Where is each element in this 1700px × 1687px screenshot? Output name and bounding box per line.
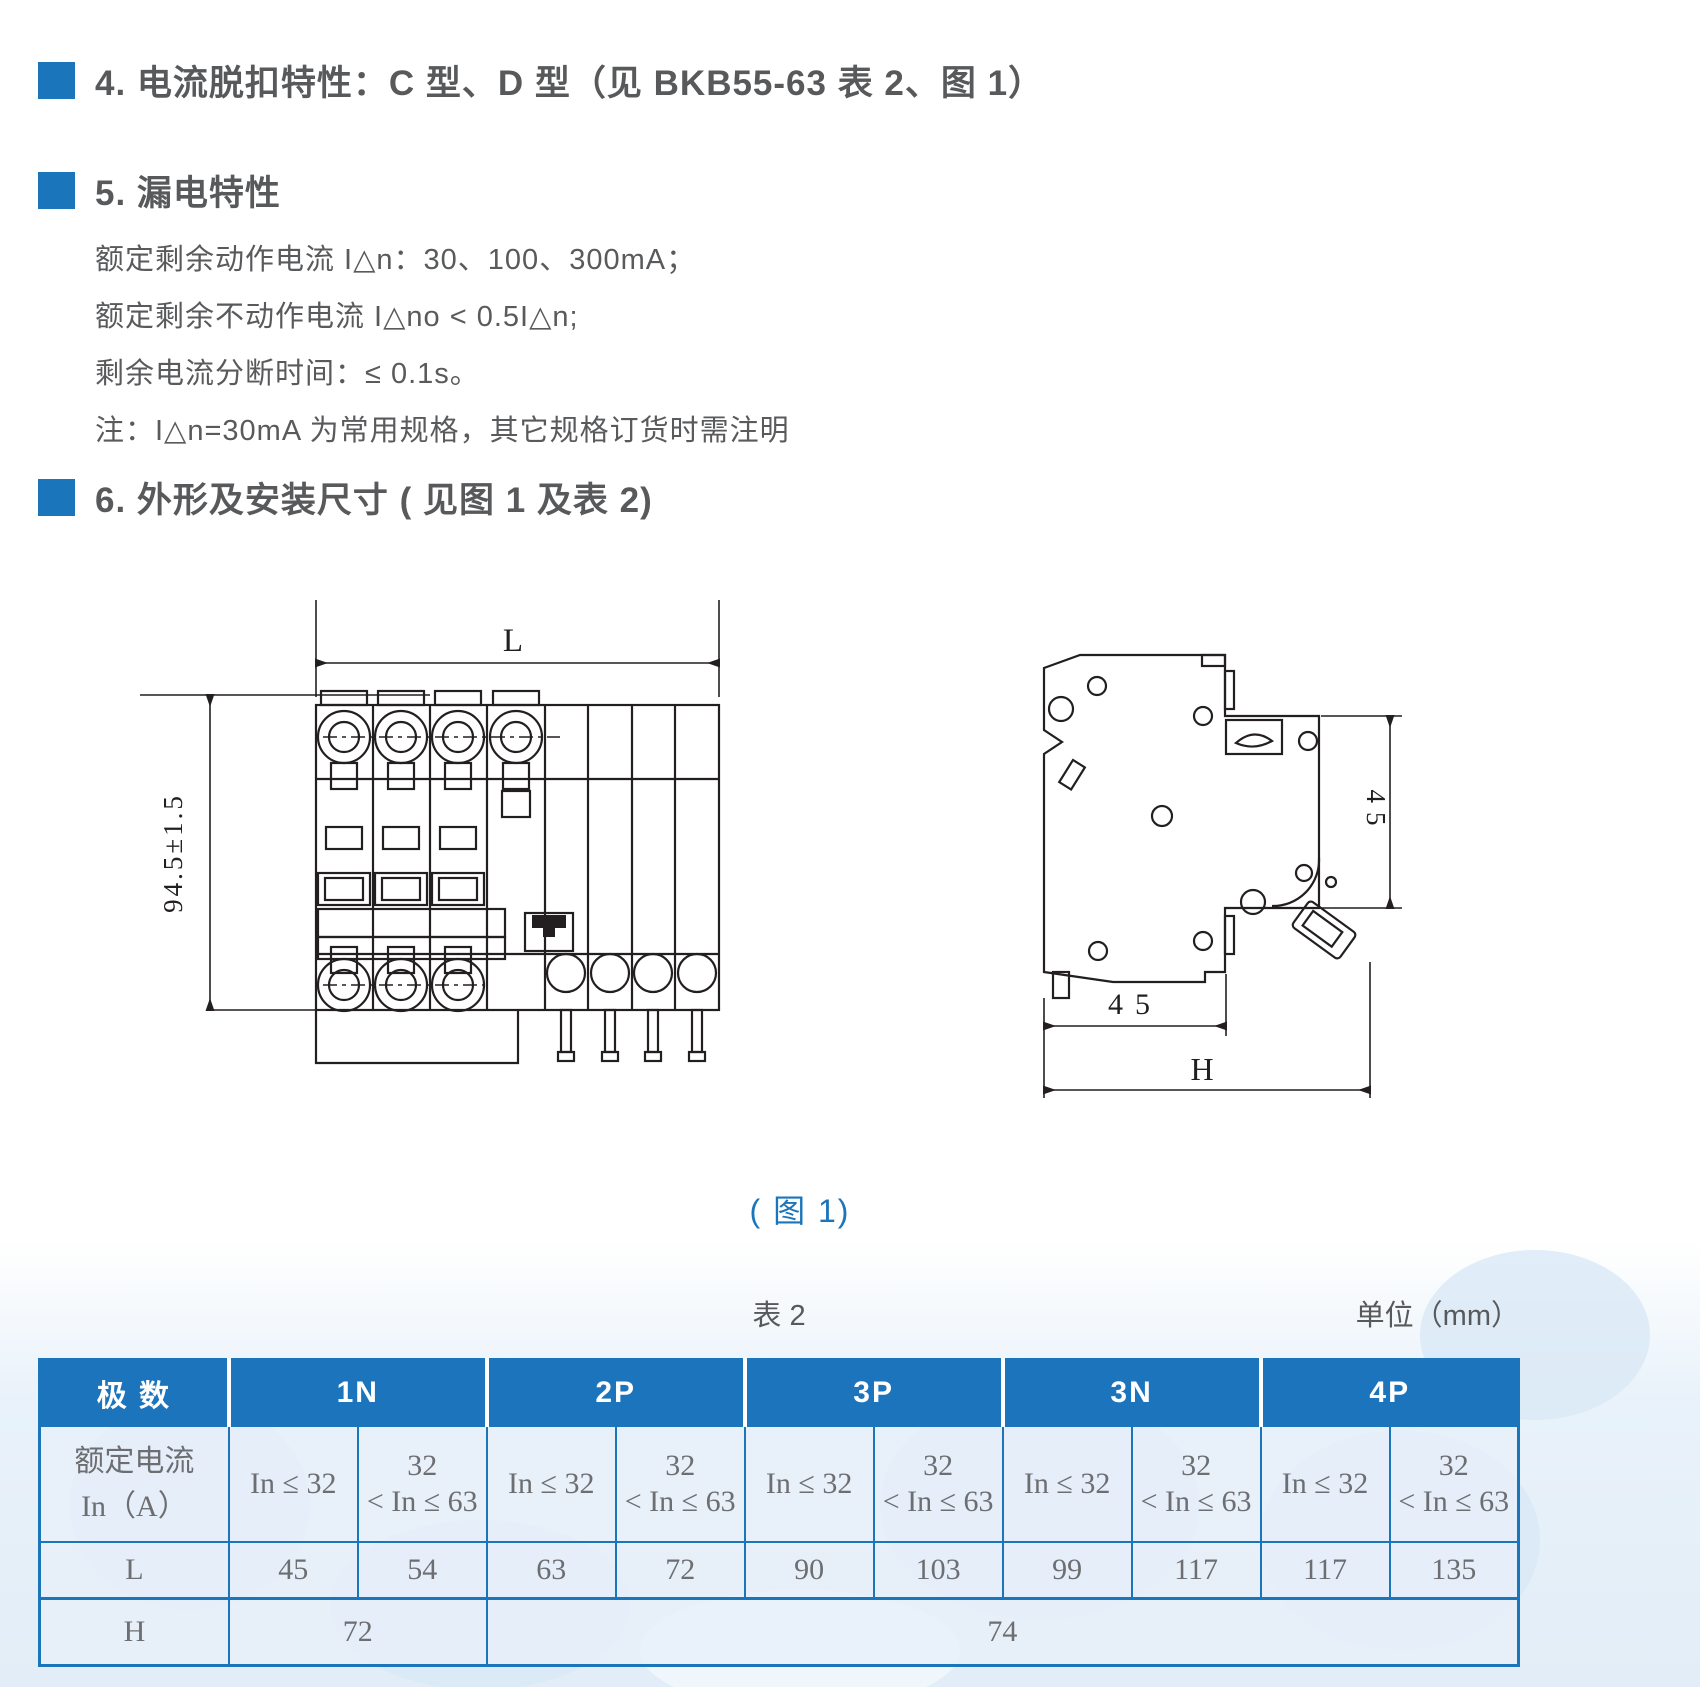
table-header-row: 极 数 1N 2P 3P 3N 4P bbox=[40, 1360, 1519, 1427]
range-cell: 32 < In ≤ 63 bbox=[1132, 1426, 1261, 1542]
L-value: 117 bbox=[1132, 1542, 1261, 1599]
range-cell: In ≤ 32 bbox=[745, 1426, 874, 1542]
datasheet-page: { "sections": { "s4": { "title": "4. 电流脱… bbox=[0, 0, 1700, 1687]
range-bottom: < In ≤ 63 bbox=[360, 1484, 485, 1520]
section-4-heading: 4. 电流脱扣特性：C 型、D 型（见 BKB55-63 表 2、图 1） bbox=[38, 55, 1044, 106]
figure-1-caption: ( 图 1) bbox=[650, 1186, 950, 1232]
section-6-heading: 6. 外形及安装尺寸 ( 见图 1 及表 2) bbox=[38, 472, 653, 523]
section-bullet-icon bbox=[38, 62, 75, 99]
section-bullet-icon bbox=[38, 479, 75, 516]
range-bottom: < In ≤ 63 bbox=[1392, 1484, 1516, 1520]
table-group-header-4P: 4P bbox=[1261, 1360, 1519, 1427]
range-cell: 32 < In ≤ 63 bbox=[1390, 1426, 1519, 1542]
range-cell: 32 < In ≤ 63 bbox=[358, 1426, 487, 1542]
L-value: 99 bbox=[1003, 1542, 1132, 1599]
dimensions-table: 极 数 1N 2P 3P 3N 4P 额定电流 In（A） In ≤ 32 32… bbox=[38, 1358, 1520, 1667]
L-row-label: L bbox=[40, 1542, 229, 1599]
side-view-drawing: 45 45 H bbox=[930, 560, 1450, 1120]
table-group-header-2P: 2P bbox=[487, 1360, 745, 1427]
side-right-dim-label: 45 bbox=[1361, 790, 1391, 835]
range-top: 32 bbox=[876, 1448, 1001, 1484]
side-bottom-dim-label: 45 bbox=[1108, 988, 1162, 1021]
range-bottom: < In ≤ 63 bbox=[618, 1484, 743, 1520]
H-value: 72 bbox=[229, 1599, 487, 1666]
section-4-title: 4. 电流脱扣特性：C 型、D 型（见 BKB55-63 表 2、图 1） bbox=[95, 55, 1044, 106]
range-cell: In ≤ 32 bbox=[1003, 1426, 1132, 1542]
range-cell: 32 < In ≤ 63 bbox=[616, 1426, 745, 1542]
section-5-heading: 5. 漏电特性 bbox=[38, 165, 281, 216]
table-H-row: H 72 74 bbox=[40, 1599, 1519, 1666]
section-5-title: 5. 漏电特性 bbox=[95, 165, 281, 216]
range-bottom: < In ≤ 63 bbox=[1134, 1484, 1259, 1520]
range-top: 32 bbox=[360, 1448, 485, 1484]
leakage-spec-line: 额定剩余不动作电流 I△no < 0.5I△n; bbox=[95, 293, 579, 335]
leakage-spec-line: 额定剩余动作电流 I△n：30、100、300mA； bbox=[95, 236, 696, 278]
L-value: 90 bbox=[745, 1542, 874, 1599]
table-L-row: L 45 54 63 72 90 103 99 117 117 135 bbox=[40, 1542, 1519, 1599]
table-group-header-3N: 3N bbox=[1003, 1360, 1261, 1427]
side-holes bbox=[1049, 677, 1336, 960]
rated-current-label-line1: 额定电流 bbox=[42, 1439, 227, 1484]
L-value: 45 bbox=[229, 1542, 358, 1599]
front-terminals bbox=[318, 711, 560, 1011]
range-bottom: < In ≤ 63 bbox=[876, 1484, 1001, 1520]
front-height-label: 94.5±1.5 bbox=[158, 793, 188, 913]
side-height-dim-label: H bbox=[1190, 1051, 1213, 1087]
L-value: 54 bbox=[358, 1542, 487, 1599]
table-corner-header: 极 数 bbox=[40, 1360, 229, 1427]
L-value: 63 bbox=[487, 1542, 616, 1599]
front-view-drawing: L 94.5±1.5 bbox=[120, 565, 740, 1085]
range-cell: In ≤ 32 bbox=[229, 1426, 358, 1542]
L-value: 103 bbox=[874, 1542, 1003, 1599]
H-value: 74 bbox=[487, 1599, 1519, 1666]
range-cell: In ≤ 32 bbox=[1261, 1426, 1390, 1542]
table-group-header-1N: 1N bbox=[229, 1360, 487, 1427]
L-value: 135 bbox=[1390, 1542, 1519, 1599]
range-cell: 32 < In ≤ 63 bbox=[874, 1426, 1003, 1542]
section-bullet-icon bbox=[38, 172, 75, 209]
table-group-header-3P: 3P bbox=[745, 1360, 1003, 1427]
table-rated-current-row: 额定电流 In（A） In ≤ 32 32 < In ≤ 63 In ≤ 32 … bbox=[40, 1426, 1519, 1542]
range-top: 32 bbox=[618, 1448, 743, 1484]
H-row-label: H bbox=[40, 1599, 229, 1666]
range-top: 32 bbox=[1134, 1448, 1259, 1484]
range-cell: In ≤ 32 bbox=[487, 1426, 616, 1542]
side-dimension-lines bbox=[1044, 716, 1402, 1098]
section-6-title: 6. 外形及安装尺寸 ( 见图 1 及表 2) bbox=[95, 472, 653, 523]
L-value: 72 bbox=[616, 1542, 745, 1599]
leakage-spec-line: 注：I△n=30mA 为常用规格，其它规格订货时需注明 bbox=[95, 407, 790, 449]
table-unit-label: 单位（mm） bbox=[1150, 1292, 1520, 1334]
L-value: 117 bbox=[1261, 1542, 1390, 1599]
rated-current-label: 额定电流 In（A） bbox=[40, 1426, 229, 1542]
leakage-spec-line: 剩余电流分断时间：≤ 0.1s。 bbox=[95, 350, 480, 392]
rated-current-label-line2: In（A） bbox=[42, 1484, 227, 1529]
range-top: 32 bbox=[1392, 1448, 1516, 1484]
front-width-label: L bbox=[503, 623, 523, 659]
